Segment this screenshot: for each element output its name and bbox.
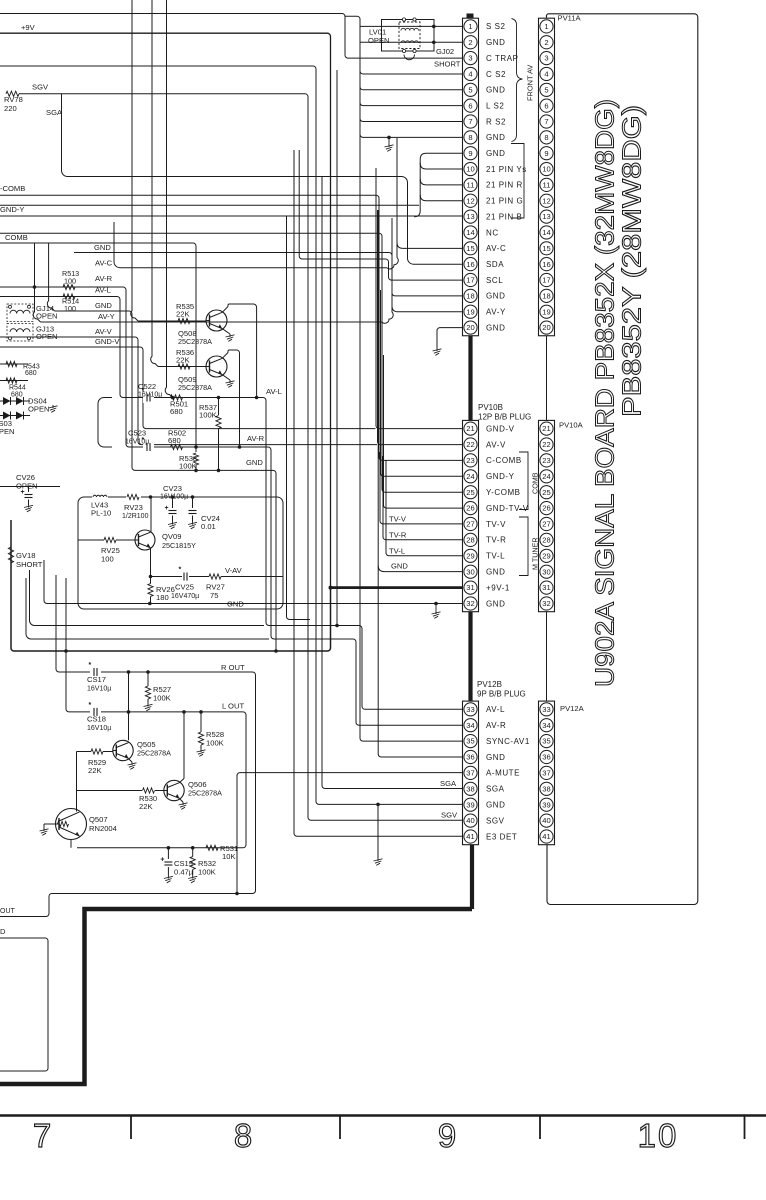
svg-text:SCL: SCL	[486, 276, 503, 285]
svg-text:100: 100	[101, 555, 114, 564]
svg-text:OPEN: OPEN	[368, 36, 390, 45]
svg-text:PV12A: PV12A	[560, 704, 585, 713]
svg-text:27: 27	[466, 520, 474, 529]
svg-text:SGA: SGA	[440, 779, 457, 788]
svg-text:25C2878A: 25C2878A	[137, 749, 171, 758]
svg-text:1: 1	[468, 22, 472, 31]
svg-text:C-COMB: C-COMB	[486, 456, 522, 465]
svg-text:16V470µ: 16V470µ	[171, 593, 199, 600]
svg-text:21 PIN R: 21 PIN R	[486, 181, 523, 190]
svg-text:AV-Y: AV-Y	[486, 308, 506, 317]
svg-text:8: 8	[468, 133, 472, 142]
svg-text:S S2: S S2	[486, 22, 506, 31]
svg-text:30: 30	[466, 567, 474, 576]
svg-text:GND: GND	[486, 323, 505, 332]
svg-text:GND: GND	[246, 458, 263, 467]
svg-text:21 PIN Ys: 21 PIN Ys	[486, 165, 527, 174]
svg-text:9: 9	[544, 149, 548, 158]
svg-text:11: 11	[467, 181, 475, 190]
svg-text:SHORT: SHORT	[434, 60, 461, 69]
svg-text:6: 6	[544, 101, 548, 110]
svg-text:21: 21	[542, 424, 550, 433]
svg-text:COMB: COMB	[531, 472, 540, 494]
svg-text:22K: 22K	[176, 310, 190, 319]
svg-text:GND: GND	[486, 599, 505, 608]
svg-text:14: 14	[466, 228, 474, 237]
svg-text:3: 3	[468, 54, 472, 63]
svg-text:CS18: CS18	[87, 715, 106, 724]
svg-text:34: 34	[542, 721, 550, 730]
svg-text:D: D	[0, 927, 6, 936]
svg-text:10: 10	[542, 165, 550, 174]
svg-text:L S2: L S2	[486, 101, 504, 110]
svg-text:GND-Y: GND-Y	[0, 205, 24, 214]
svg-text:8: 8	[234, 1117, 254, 1154]
svg-text:9P B/B PLUG: 9P B/B PLUG	[477, 690, 526, 699]
svg-text:AV-C: AV-C	[95, 259, 113, 268]
svg-text:33: 33	[542, 705, 550, 714]
svg-text:NC: NC	[486, 228, 499, 237]
svg-text:5: 5	[544, 85, 548, 94]
svg-text:10: 10	[638, 1117, 679, 1154]
svg-text:OUT: OUT	[0, 908, 16, 915]
svg-text:RV23: RV23	[124, 503, 143, 512]
svg-text:21 PIN B: 21 PIN B	[486, 212, 522, 221]
svg-text:0.01: 0.01	[201, 522, 216, 531]
svg-text:SGA: SGA	[486, 785, 505, 794]
svg-text:15: 15	[542, 244, 550, 253]
svg-text:17: 17	[466, 276, 474, 285]
svg-text:10K: 10K	[222, 852, 236, 861]
svg-text:8: 8	[544, 133, 548, 142]
svg-text:GND: GND	[486, 292, 505, 301]
svg-text:SYNC-AV1: SYNC-AV1	[486, 737, 530, 746]
svg-text:35: 35	[466, 737, 474, 746]
svg-text:25C2878A: 25C2878A	[188, 789, 222, 798]
svg-text:21 PIN G: 21 PIN G	[486, 197, 523, 206]
svg-text:A-MUTE: A-MUTE	[486, 769, 520, 778]
svg-text:41: 41	[466, 832, 474, 841]
svg-text:SDA: SDA	[486, 260, 504, 269]
svg-text:680: 680	[170, 407, 183, 416]
svg-text:1/2R100: 1/2R100	[122, 513, 149, 520]
svg-text:L OUT: L OUT	[222, 702, 244, 711]
svg-text:AV-R: AV-R	[486, 721, 506, 730]
svg-text:32: 32	[466, 599, 474, 608]
svg-text:OPEN: OPEN	[36, 312, 58, 321]
svg-text:AV-L: AV-L	[486, 705, 505, 714]
svg-text:E3 DET: E3 DET	[486, 832, 517, 841]
svg-text:220: 220	[4, 104, 17, 113]
svg-text:34: 34	[466, 721, 474, 730]
svg-text:SGA: SGA	[46, 108, 63, 117]
svg-text:38: 38	[542, 784, 550, 793]
svg-text:9: 9	[468, 149, 472, 158]
svg-text:100K: 100K	[198, 868, 216, 877]
svg-text:16: 16	[542, 260, 550, 269]
svg-text:Y-COMB: Y-COMB	[486, 488, 521, 497]
svg-text:AV-L: AV-L	[95, 286, 111, 295]
svg-text:2: 2	[544, 38, 548, 47]
svg-text:18: 18	[542, 291, 550, 300]
svg-text:16V100µ: 16V100µ	[160, 494, 188, 501]
svg-text:GND-TV-V: GND-TV-V	[486, 504, 529, 513]
svg-text:+: +	[160, 857, 164, 864]
svg-text:7: 7	[33, 1117, 53, 1154]
svg-text:26: 26	[542, 504, 550, 513]
svg-text:GJ02: GJ02	[436, 47, 454, 56]
svg-text:31: 31	[542, 583, 550, 592]
svg-text:+9V: +9V	[21, 23, 36, 32]
svg-text:GND-V: GND-V	[486, 424, 515, 433]
svg-text:180: 180	[156, 593, 169, 602]
svg-text:31: 31	[466, 583, 474, 592]
svg-text:-COMB: -COMB	[0, 184, 25, 193]
svg-text:PV10A: PV10A	[559, 421, 584, 430]
svg-text:18: 18	[466, 291, 474, 300]
svg-text:100K: 100K	[199, 411, 217, 420]
svg-text:GND: GND	[486, 753, 505, 762]
svg-text:37: 37	[542, 769, 550, 778]
svg-text:PB8352Y (28MW8DG): PB8352Y (28MW8DG)	[617, 105, 647, 417]
svg-text:20: 20	[542, 323, 550, 332]
svg-text:PV10B: PV10B	[478, 403, 503, 412]
svg-text:GND: GND	[95, 301, 112, 310]
svg-text:QV09: QV09	[162, 532, 181, 541]
svg-text:40: 40	[466, 816, 474, 825]
svg-text:16V10µ: 16V10µ	[125, 439, 149, 446]
svg-text:GND: GND	[486, 133, 505, 142]
svg-text:19: 19	[542, 307, 550, 316]
svg-text:14: 14	[542, 228, 550, 237]
svg-text:C523: C523	[128, 429, 146, 438]
svg-text:12: 12	[466, 196, 474, 205]
svg-text:FRONT AV: FRONT AV	[526, 65, 535, 101]
svg-text:7: 7	[544, 117, 548, 126]
svg-text:GV18: GV18	[16, 551, 35, 560]
svg-text:SGV: SGV	[486, 816, 505, 825]
svg-text:38: 38	[466, 784, 474, 793]
svg-text:C S2: C S2	[486, 70, 506, 79]
svg-text:100: 100	[64, 277, 76, 286]
svg-text:*: *	[179, 567, 182, 574]
svg-text:36: 36	[542, 753, 550, 762]
svg-text:680: 680	[11, 392, 23, 399]
svg-text:39: 39	[466, 800, 474, 809]
svg-text:TV-L: TV-L	[389, 546, 405, 555]
svg-text:AV-Y: AV-Y	[98, 312, 115, 321]
svg-text:9: 9	[438, 1117, 458, 1154]
svg-text:680: 680	[25, 370, 37, 377]
svg-text:33: 33	[466, 705, 474, 714]
svg-text:PL-10: PL-10	[91, 509, 111, 518]
svg-text:*: *	[89, 702, 92, 709]
svg-text:SGV: SGV	[441, 811, 458, 820]
svg-text:17: 17	[542, 276, 550, 285]
svg-text:19: 19	[466, 307, 474, 316]
svg-text:R OUT: R OUT	[221, 663, 245, 672]
svg-text:15: 15	[466, 244, 474, 253]
svg-text:AV-R: AV-R	[247, 434, 265, 443]
svg-text:24: 24	[466, 472, 474, 481]
svg-text:22K: 22K	[176, 356, 190, 365]
svg-text:CV23: CV23	[163, 484, 182, 493]
svg-text:41: 41	[542, 832, 550, 841]
svg-text:25: 25	[542, 488, 550, 497]
svg-text:TV-V: TV-V	[389, 515, 407, 524]
svg-text:30: 30	[542, 567, 550, 576]
svg-text:21: 21	[466, 424, 474, 433]
svg-text:23: 23	[542, 456, 550, 465]
svg-text:4: 4	[544, 70, 548, 79]
svg-text:AV-V: AV-V	[95, 327, 113, 336]
svg-text:GND: GND	[486, 568, 505, 577]
svg-text:*: *	[89, 662, 92, 669]
svg-text:TV-R: TV-R	[389, 530, 407, 539]
svg-text:680: 680	[168, 436, 181, 445]
svg-text:13: 13	[542, 212, 550, 221]
svg-text:+9V-1: +9V-1	[486, 583, 510, 592]
svg-text:0.47µ: 0.47µ	[174, 868, 194, 877]
svg-text:AV-V: AV-V	[486, 440, 506, 449]
svg-text:16V10µ: 16V10µ	[87, 686, 111, 693]
svg-text:Q507: Q507	[89, 815, 108, 824]
svg-text:22K: 22K	[139, 802, 153, 811]
svg-text:CS17: CS17	[87, 675, 106, 684]
svg-text:25C2878A: 25C2878A	[178, 337, 212, 346]
svg-text:29: 29	[466, 551, 474, 560]
svg-text:26: 26	[466, 504, 474, 513]
svg-text:AV-C: AV-C	[486, 244, 506, 253]
svg-text:GND-V: GND-V	[95, 337, 120, 346]
svg-text:10: 10	[466, 165, 474, 174]
svg-text:TV-V: TV-V	[486, 520, 506, 529]
svg-text:C522: C522	[138, 382, 156, 391]
svg-text:PV12B: PV12B	[477, 680, 502, 689]
svg-text:GND: GND	[391, 562, 408, 571]
svg-text:20: 20	[466, 323, 474, 332]
svg-text:6: 6	[468, 101, 472, 110]
svg-text:GND: GND	[486, 801, 505, 810]
svg-text:22K: 22K	[88, 766, 102, 775]
svg-text:4: 4	[468, 70, 472, 79]
svg-text:100K: 100K	[206, 739, 224, 748]
svg-text:GND: GND	[486, 86, 505, 95]
svg-text:U902A SIGNAL BOARD PB8352X (32: U902A SIGNAL BOARD PB8352X (32MW8DG)	[590, 99, 620, 687]
svg-text:13: 13	[466, 212, 474, 221]
svg-text:RN2004: RN2004	[89, 824, 117, 833]
svg-text:GND-Y: GND-Y	[486, 472, 515, 481]
svg-text:100K: 100K	[153, 694, 171, 703]
svg-text:27: 27	[542, 520, 550, 529]
svg-text:100: 100	[64, 304, 76, 313]
svg-text:GND: GND	[486, 38, 505, 47]
svg-text:PV11A: PV11A	[558, 14, 582, 23]
svg-text:37: 37	[466, 769, 474, 778]
svg-text:39: 39	[542, 800, 550, 809]
svg-text:GND: GND	[227, 600, 244, 609]
svg-text:RV78: RV78	[4, 95, 23, 104]
svg-text:M TUNER: M TUNER	[531, 537, 540, 570]
svg-text:25C2878A: 25C2878A	[178, 383, 212, 392]
svg-text:25C1815Y: 25C1815Y	[162, 541, 196, 550]
svg-text:24: 24	[542, 472, 550, 481]
svg-text:2: 2	[468, 38, 472, 47]
svg-text:16V10µ: 16V10µ	[138, 392, 162, 399]
svg-text:12: 12	[542, 196, 550, 205]
svg-text:28: 28	[542, 536, 550, 545]
svg-text:GND: GND	[94, 243, 111, 252]
svg-text:22: 22	[466, 440, 474, 449]
svg-text:12P B/B PLUG: 12P B/B PLUG	[478, 413, 531, 422]
svg-text:+: +	[165, 505, 169, 512]
svg-text:35: 35	[542, 737, 550, 746]
svg-text:29: 29	[542, 551, 550, 560]
svg-text:16V10µ: 16V10µ	[87, 725, 111, 732]
svg-text:16: 16	[466, 260, 474, 269]
svg-text:3: 3	[544, 54, 548, 63]
svg-text:28: 28	[466, 536, 474, 545]
svg-text:OPEN: OPEN	[36, 332, 58, 341]
svg-text:GND: GND	[486, 149, 505, 158]
svg-text:CV25: CV25	[175, 583, 194, 592]
svg-text:SHORT: SHORT	[16, 560, 43, 569]
svg-text:R S2: R S2	[486, 117, 506, 126]
svg-text:OPEN: OPEN	[28, 405, 50, 414]
svg-text:22: 22	[542, 440, 550, 449]
svg-text:100K: 100K	[179, 462, 197, 471]
svg-text:V-AV: V-AV	[225, 566, 243, 575]
svg-text:23: 23	[466, 456, 474, 465]
svg-text:7: 7	[468, 117, 472, 126]
svg-text:32: 32	[542, 599, 550, 608]
svg-text:R544: R544	[9, 385, 26, 392]
svg-text:COMB: COMB	[5, 233, 28, 242]
svg-text:1: 1	[544, 22, 548, 31]
svg-text:SGV: SGV	[32, 83, 49, 92]
svg-text:5: 5	[468, 85, 472, 94]
svg-text:75: 75	[210, 591, 218, 600]
svg-text:TV-L: TV-L	[486, 552, 505, 561]
svg-text:36: 36	[466, 753, 474, 762]
svg-text:C TRAP: C TRAP	[486, 54, 519, 63]
svg-text:OPEN: OPEN	[0, 427, 15, 436]
svg-text:+: +	[21, 489, 25, 496]
svg-text:40: 40	[542, 816, 550, 825]
svg-text:AV-L: AV-L	[266, 387, 282, 396]
svg-text:11: 11	[543, 181, 551, 190]
svg-text:AV-R: AV-R	[95, 274, 113, 283]
svg-text:25: 25	[466, 488, 474, 497]
svg-text:OPEN: OPEN	[16, 482, 38, 491]
svg-text:TV-R: TV-R	[486, 536, 506, 545]
